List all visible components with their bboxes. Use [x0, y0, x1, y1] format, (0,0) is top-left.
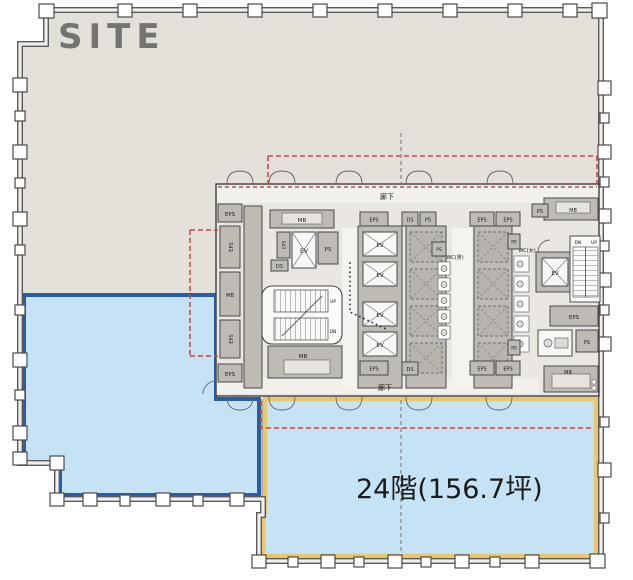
room-label-ps: PS [511, 240, 517, 246]
core: EPS EPS MB EPS EPS MB EPS DS EV PS [203, 171, 600, 410]
room-label-wc-women: WC(女) [518, 247, 535, 254]
room-label-ds: DS [406, 218, 413, 224]
ev-lobby-left [342, 228, 360, 388]
room-label-eps: EPS [503, 218, 512, 224]
room-label-mb: MB [564, 370, 572, 376]
sink-icon [592, 380, 596, 384]
room-label-ps: PS [511, 346, 517, 352]
room-label-ev: EV [551, 271, 558, 277]
room-label-mb: MB [569, 208, 577, 214]
mb-room-center: MB [268, 346, 342, 378]
room-label-eps: EPS [477, 218, 486, 224]
room-label-eps: EPS [229, 242, 235, 251]
floor-plan: SITE EPS [0, 0, 633, 580]
stair-label-dn: DN [575, 240, 582, 246]
room-label-eps: EPS [503, 367, 512, 373]
corridor-label-top: 廊下 [380, 192, 394, 201]
wc-accessible [538, 330, 572, 356]
center-block: MB EPS DS EV PS [270, 210, 338, 271]
stair-label-dn: DN [330, 329, 337, 335]
room-label-eps: EPS [229, 334, 235, 343]
room-label-ev: EV [300, 248, 309, 255]
room-label-eps: EPS [369, 218, 378, 224]
floor-plan-svg: SITE EPS [0, 0, 633, 580]
room-label-ps: PS [325, 247, 332, 253]
stair-label-up: UP [330, 299, 336, 305]
emergency-staircase: DN UP [570, 236, 600, 302]
room-label-ev: EV [376, 273, 383, 279]
room-label-eps: EPS [477, 367, 486, 373]
room-label-mb: MB [226, 293, 234, 299]
room-label-ps: PS [436, 247, 442, 253]
room-label-ev: EV [376, 313, 383, 319]
room-label-mb: MB [299, 354, 308, 360]
room-label-eps: EPS [225, 372, 236, 378]
room-label-ps: PS [584, 340, 590, 346]
corridor-top [217, 186, 598, 203]
room-label-eps: EPS [569, 315, 580, 321]
room-label-ev: EV [376, 343, 383, 349]
ev-lobby-center [452, 228, 472, 388]
stair-label-up: UP [591, 240, 597, 246]
corridor-label-bottom: 廊下 [378, 383, 392, 392]
room-label-ds: DS [276, 264, 283, 270]
room-label-ev: EV [376, 243, 383, 249]
room-label-mb: MB [298, 218, 307, 224]
room-label-ps: PS [425, 218, 431, 224]
floor-title: 24階(156.7坪) [356, 474, 543, 505]
main-staircase: UP DN [262, 286, 342, 344]
room-label-eps: EPS [369, 367, 378, 373]
room-label-ps: PS [537, 209, 543, 215]
watermark-text: SITE [58, 17, 166, 57]
room-label-eps: EPS [282, 241, 288, 250]
room-label-ds: DS [406, 367, 413, 373]
room-label-eps: EPS [225, 212, 236, 218]
sink-icon [592, 386, 596, 390]
room-label-wc-men: WC(男) [446, 255, 463, 261]
